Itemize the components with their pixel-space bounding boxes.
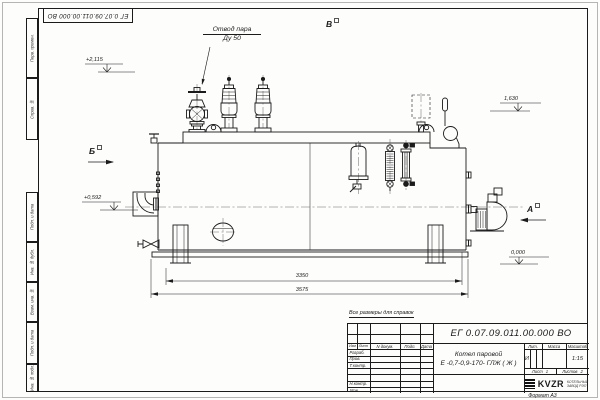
tb-sheet-label: Лист [532,369,543,374]
format-label: Формат А3 [497,393,588,399]
callout-line2: Ду 50 [203,35,261,43]
drawing-sheet: ЕГ 0.07.09.011.00.000 ВО Перв. примен. С… [0,0,600,400]
margin-label: Инв. № дубл. [27,243,37,281]
elevation-label-0592: +0,592 [84,195,101,201]
margin-label: Инв. № подл. [27,365,37,391]
company-abbr: KVZR [538,379,564,389]
tb-sheet-value: 1 [546,369,548,374]
margin-cell-podp-data-2: Подп. и дата [26,322,38,364]
tb-row-utv: Утв. [348,387,372,393]
tb-header-podp: Подп. [400,343,420,349]
margin-cell-inv-dubl: Инв. № дубл. [26,242,38,282]
tb-header-ndoc: N докум. [370,343,400,349]
elevation-label-0000: 0,000 [511,250,525,256]
top-corner-stamp: ЕГ 0.07.09.011.00.000 ВО [43,8,133,23]
tb-scale-value: 1:15 [566,349,589,368]
elevation-label-1630: 1,630 [504,96,518,102]
company-logo-icon [525,379,535,389]
margin-label: Подп. и дата [27,193,37,241]
view-ref-mark [97,145,102,150]
reference-note: Все размеры для справок [349,310,414,318]
tb-doc-number: ЕГ 0.07.09.011.00.000 ВО [433,324,589,343]
tb-row-tkontr: Т.контр. [348,362,372,368]
margin-cell-perv-primen: Перв. примен. [26,18,38,78]
view-letter: Б [89,146,95,156]
tb-mass-header: Масса [542,343,566,349]
margin-cell-sprav-no: Справ. № [26,78,38,140]
margin-label: Взам. инв. № [27,283,37,321]
tb-product-line1: Котел паровой [455,350,502,359]
title-block: Изм Лист N докум. Подп. Дата Разраб. Про… [347,323,588,392]
view-label-v: В [326,18,339,29]
company-line2: ЗАВОД РЭП [567,384,588,388]
steam-outlet-callout: Отвод пара Ду 50 [203,26,261,42]
view-label-b: Б [89,145,102,156]
margin-label: Справ. № [27,79,37,139]
margin-cell-podp-data-1: Подп. и дата [26,192,38,242]
tb-sheets-value: 2 [580,369,582,374]
tb-sheets-label: Листов [562,369,577,374]
callout-line1: Отвод пара [203,26,261,35]
margin-cell-vzam-inv: Взам. инв. № [26,282,38,322]
view-label-a: А [527,203,540,214]
dimension-label-3350: 3350 [280,273,324,279]
margin-label: Подп. и дата [27,323,37,363]
tb-lit-value: И [524,349,530,368]
view-letter: В [326,19,332,29]
tb-product-line2: Е -0,7-0,9-170- ГЛЖ ( Ж ) [440,359,516,368]
view-ref-mark [535,203,540,208]
dimension-label-3575: 3575 [280,287,324,293]
elevation-label-2115: +2,115 [86,57,103,63]
margin-cell-inv-podl: Инв. № подл. [26,364,38,392]
tb-header-data: Дата [420,343,433,349]
top-corner-doc-number: ЕГ 0.07.09.011.00.000 ВО [44,9,132,22]
view-letter: А [527,204,533,214]
view-ref-mark [334,18,339,23]
margin-label: Перв. примен. [27,19,37,77]
tb-product-name: Котел паровой Е -0,7-0,9-170- ГЛЖ ( Ж ) [433,343,524,374]
tb-company-cell: KVZR КОТЕЛЬНЫЙ ЗАВОД РЭП [524,374,589,393]
